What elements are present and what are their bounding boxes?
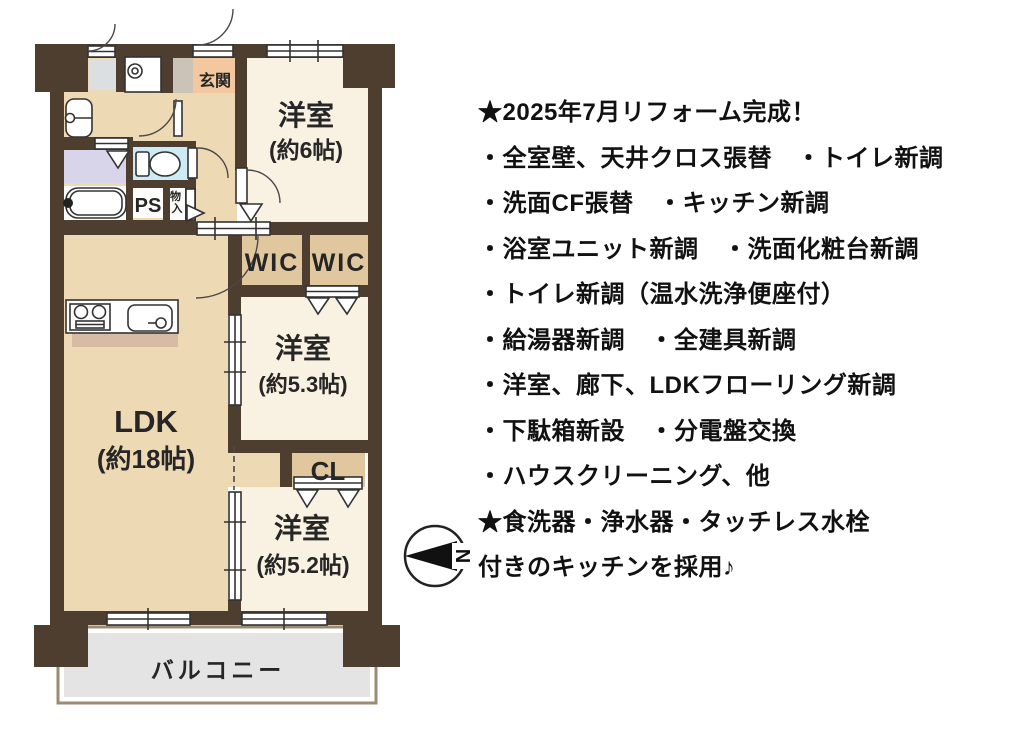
renovation-note: ・洗面CF張替 ・キッチン新調 — [478, 181, 1024, 227]
renovation-note: ・下駄箱新設 ・分電盤交換 — [478, 409, 1024, 455]
bedroom-53-floor — [241, 297, 368, 440]
bedroom-6-label: 洋室 — [278, 99, 334, 131]
renovation-note: ・浴室ユニット新調 ・洗面化粧台新調 — [478, 227, 1024, 273]
genkan-step — [173, 58, 193, 93]
ldk-label: LDK — [114, 404, 178, 439]
wic2-label: WIC — [312, 249, 367, 277]
cl-label: CL — [311, 456, 346, 486]
renovation-note: ・全室壁、天井クロス張替 ・トイレ新調 — [478, 136, 1024, 182]
kitchen-counter — [66, 300, 178, 347]
wic1-label: WIC — [245, 249, 300, 277]
renovation-note: ・給湯器新調 ・全建具新調 — [478, 318, 1024, 364]
storage-label: 物 入 — [170, 189, 184, 215]
bathtub-icon — [63, 188, 126, 218]
bedroom-52-size: (約5.2帖) — [256, 552, 349, 578]
toilet-door — [188, 148, 197, 178]
ldk-size: (約18帖) — [97, 444, 195, 474]
vanity-icon — [66, 99, 93, 137]
ps-label: PS — [135, 195, 162, 217]
notes-title: ★2025年7月リフォーム完成！ — [478, 90, 1024, 136]
toilet-icon — [136, 152, 180, 176]
renovation-note: ・ハウスクリーニング、他 — [478, 454, 1024, 500]
bedroom-6-door — [236, 168, 247, 203]
bedroom-52-label: 洋室 — [274, 512, 330, 544]
flyer-page: N 玄関 洋室 (約6帖) WIC WIC 洋室 (約5.3帖) LDK (約1… — [0, 0, 1024, 740]
compass-icon: N — [405, 526, 473, 586]
renovation-note: ・洋室、廊下、LDKフローリング新調 — [478, 363, 1024, 409]
entrance-door-arc — [197, 9, 233, 45]
porch-alcove — [89, 59, 116, 90]
stove-icon — [70, 304, 110, 330]
renovation-note: ・トイレ新調（温水洗浄便座付） — [478, 272, 1024, 318]
bedroom-6-size: (約6帖) — [269, 137, 343, 163]
balcony-label: バルコニー — [151, 657, 286, 683]
bedroom-53-label: 洋室 — [275, 332, 331, 364]
balcony-block-left — [34, 625, 88, 667]
renovation-notes: ★2025年7月リフォーム完成！ ・全室壁、天井クロス張替 ・トイレ新調 ・洗面… — [478, 90, 1024, 591]
bedroom-53-size: (約5.3帖) — [258, 372, 347, 397]
kitchen-feature-note: 付きのキッチンを採用♪ — [478, 545, 1024, 591]
sink-icon — [128, 305, 172, 331]
genkan-label: 玄関 — [199, 71, 231, 90]
balcony-block-right — [343, 625, 400, 667]
kitchen-feature-note: ★食洗器・浄水器・タッチレス水栓 — [478, 500, 1024, 546]
laundry-pan-icon — [125, 57, 161, 92]
compass-n-label: N — [451, 549, 473, 563]
